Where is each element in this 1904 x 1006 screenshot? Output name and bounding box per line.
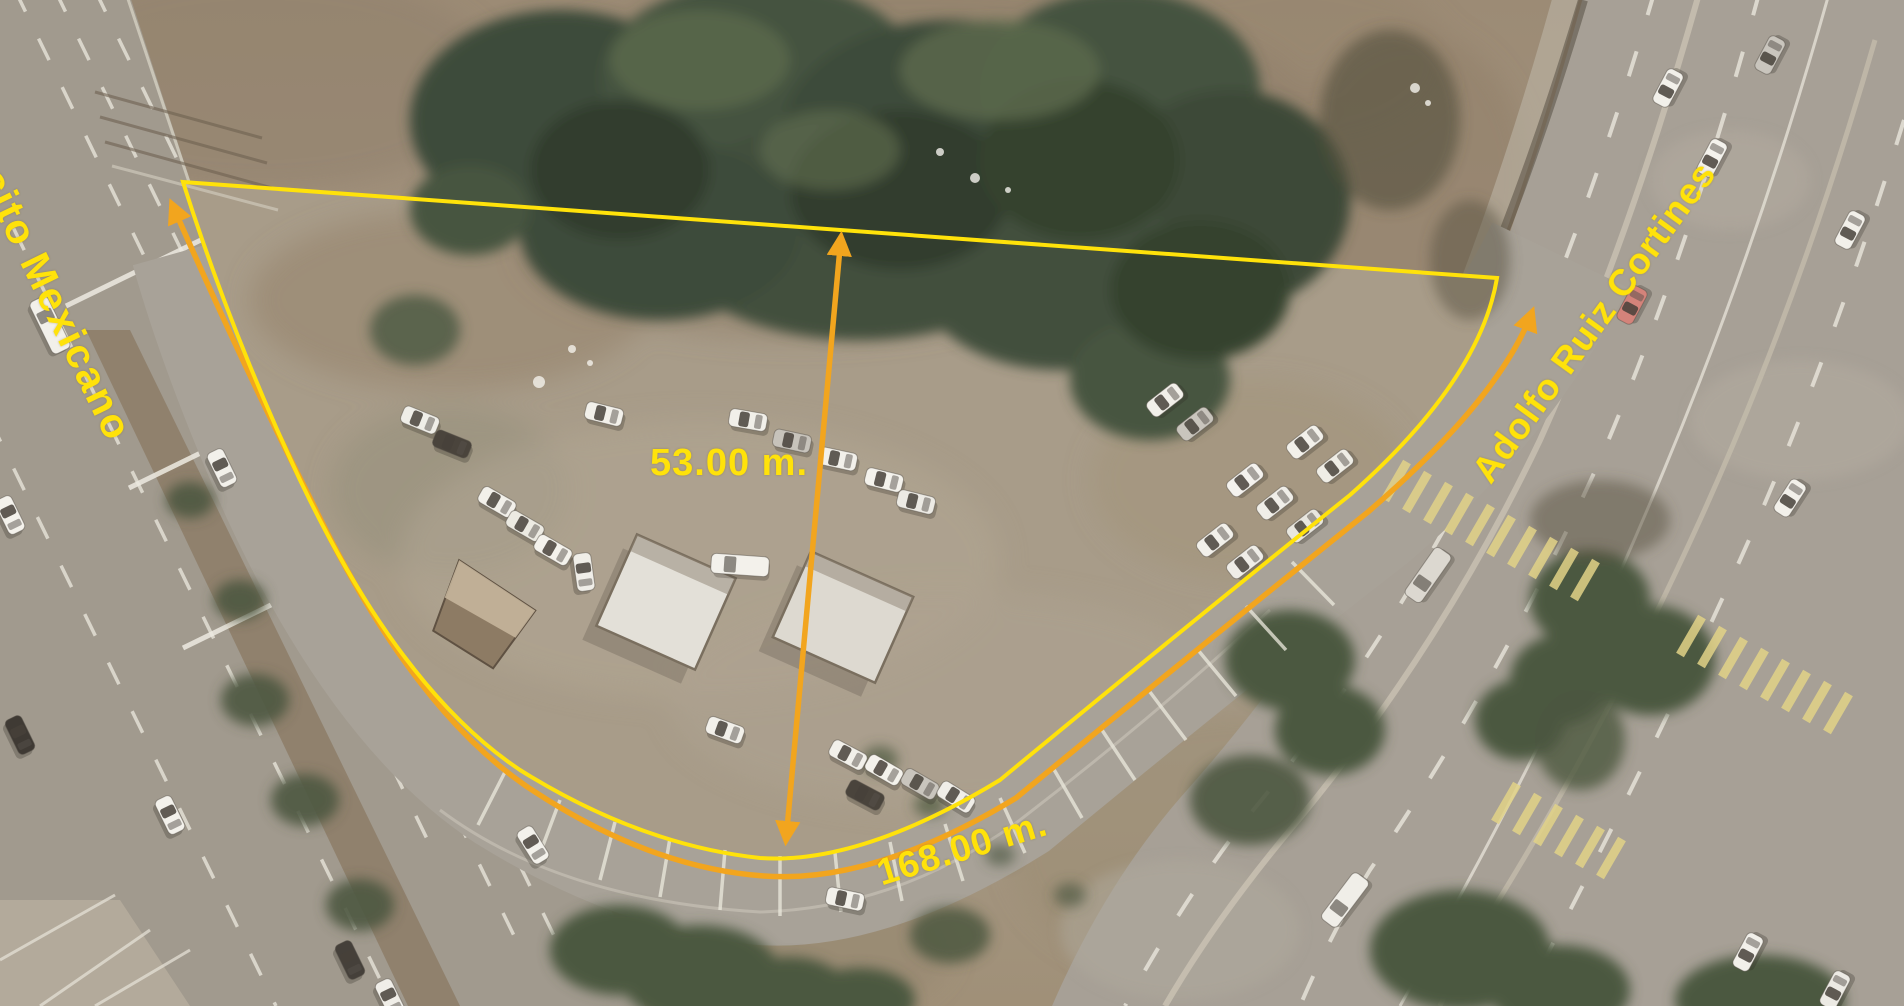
aerial-map: Ejército Mexicano Adolfo Ruiz Cortines 5… xyxy=(0,0,1904,1006)
width-measurement-label: 53.00 m. xyxy=(650,442,808,485)
parked-van xyxy=(710,553,771,581)
